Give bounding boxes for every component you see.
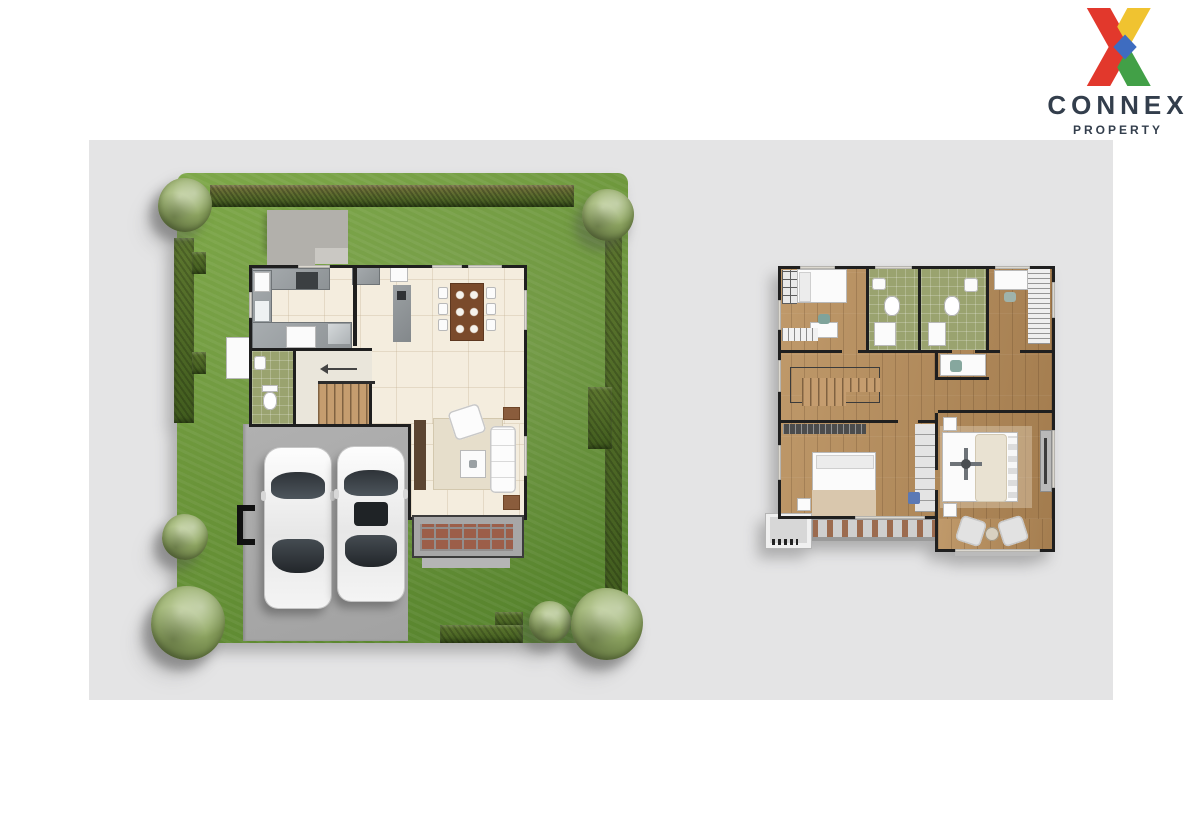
dining-chair: [438, 319, 448, 331]
wall: [918, 266, 921, 350]
wall: [986, 266, 989, 350]
window-sill: [955, 552, 1040, 556]
coffee-maker: [397, 291, 406, 300]
hedge: [440, 625, 523, 643]
gate: [243, 539, 255, 545]
side-mirror: [334, 489, 339, 499]
side-mirror: [403, 489, 408, 499]
windshield: [271, 472, 325, 499]
wall: [1020, 350, 1055, 353]
roof-deck: [812, 519, 936, 538]
desk-chair: [950, 360, 962, 372]
tree: [571, 588, 643, 660]
wall: [293, 351, 296, 427]
staircase: [802, 392, 846, 406]
nightstand: [797, 498, 811, 511]
rear-window: [272, 539, 324, 573]
bed: [812, 452, 876, 516]
dining-chair: [486, 319, 496, 331]
rear-window: [345, 535, 397, 567]
wardrobe: [1040, 430, 1052, 492]
dining-chair: [486, 303, 496, 315]
pillow: [799, 272, 811, 302]
tree: [529, 601, 571, 643]
headboard: [1008, 436, 1017, 498]
desk-chair: [818, 314, 830, 324]
entry-porch: [267, 210, 348, 250]
wardrobe: [782, 270, 797, 304]
hedge: [192, 352, 206, 374]
fridge: [254, 272, 270, 292]
toilet: [944, 296, 960, 316]
balcony-door: [855, 516, 925, 519]
hedge: [174, 238, 194, 423]
nightstand: [943, 417, 957, 431]
second-floor-plan: [760, 255, 1075, 560]
wardrobe: [1028, 269, 1050, 344]
brand-tagline: PROPERTY: [1042, 123, 1194, 137]
bathroom-sink: [872, 278, 886, 290]
first-floor-plan: [155, 165, 651, 670]
tree: [151, 586, 225, 660]
tree: [162, 514, 208, 560]
wardrobe-handle: [1044, 438, 1047, 484]
wall: [249, 265, 252, 427]
brand-logo: CONNEX PROPERTY: [1042, 8, 1194, 137]
wall: [918, 420, 938, 423]
car: [265, 448, 331, 608]
dining-chair: [486, 287, 496, 299]
windshield: [344, 470, 398, 496]
round-table: [985, 527, 999, 541]
dining-chair: [438, 303, 448, 315]
hedge: [210, 185, 574, 207]
side-table: [503, 495, 520, 510]
wall: [975, 350, 1000, 353]
window: [524, 436, 527, 476]
wall: [935, 353, 938, 380]
page: CONNEX PROPERTY: [0, 0, 1200, 838]
window: [432, 265, 462, 268]
appliance: [328, 324, 350, 344]
window: [524, 290, 527, 330]
staircase: [318, 384, 369, 424]
window: [298, 265, 330, 268]
gate: [243, 505, 255, 511]
window: [249, 292, 252, 318]
dining-chair: [438, 287, 448, 299]
desk: [994, 270, 1028, 290]
window: [778, 360, 781, 392]
car: [338, 447, 404, 601]
fan-hub: [961, 459, 971, 469]
terrace-step: [422, 558, 510, 568]
shower: [874, 322, 896, 346]
side-table: [503, 407, 520, 420]
connex-x-icon: [1083, 8, 1153, 86]
window: [778, 445, 781, 480]
deck-rail: [812, 538, 936, 541]
table-decor: [469, 460, 477, 468]
toilet: [263, 392, 277, 410]
stool: [908, 492, 920, 504]
blanket: [812, 490, 876, 516]
washer: [286, 326, 316, 348]
wall: [778, 420, 898, 423]
bed: [797, 269, 847, 303]
utility-pad: [226, 337, 250, 379]
ceiling-fan: [950, 448, 982, 480]
balcony-railing: [772, 539, 798, 545]
bathroom-sink: [254, 356, 266, 370]
wall: [408, 424, 411, 520]
toilet: [884, 296, 900, 316]
side-mirror: [261, 491, 266, 501]
wall: [249, 424, 411, 427]
window: [995, 266, 1030, 269]
floor-plan-canvas: [89, 140, 1113, 700]
wall: [938, 377, 989, 380]
desk: [940, 354, 986, 376]
window: [800, 266, 835, 269]
brand-name: CONNEX: [1042, 90, 1194, 121]
sofa: [490, 426, 516, 493]
desk-chair: [1004, 292, 1016, 302]
dining-table: [450, 283, 484, 341]
kitchen-sink: [254, 300, 270, 322]
tree: [158, 178, 212, 232]
sunroof: [354, 502, 388, 525]
nightstand: [943, 503, 957, 517]
staircase: [802, 378, 880, 392]
direction-arrow: [327, 368, 357, 370]
hedge: [192, 252, 206, 274]
hedge: [588, 387, 612, 449]
window: [778, 300, 781, 330]
basin: [390, 267, 408, 282]
tree: [582, 189, 634, 241]
window: [1052, 430, 1055, 488]
wall: [935, 490, 938, 519]
direction-arrow: [320, 364, 328, 374]
wall: [353, 268, 357, 346]
wall: [938, 410, 1055, 413]
window: [875, 266, 912, 269]
shower: [928, 322, 946, 346]
window: [1052, 282, 1055, 318]
wall: [249, 348, 372, 351]
wall: [935, 519, 938, 552]
pillow: [816, 455, 874, 469]
window: [468, 265, 502, 268]
entry-step: [315, 248, 348, 264]
wall: [369, 384, 372, 427]
bathroom-sink: [964, 278, 978, 292]
toilet: [262, 385, 278, 392]
wall: [778, 350, 842, 353]
terrace-tiles: [420, 524, 513, 551]
wall: [866, 266, 869, 350]
stove: [296, 272, 318, 289]
tv-console: [414, 420, 426, 490]
wardrobe: [783, 424, 866, 434]
dresser: [782, 328, 818, 341]
